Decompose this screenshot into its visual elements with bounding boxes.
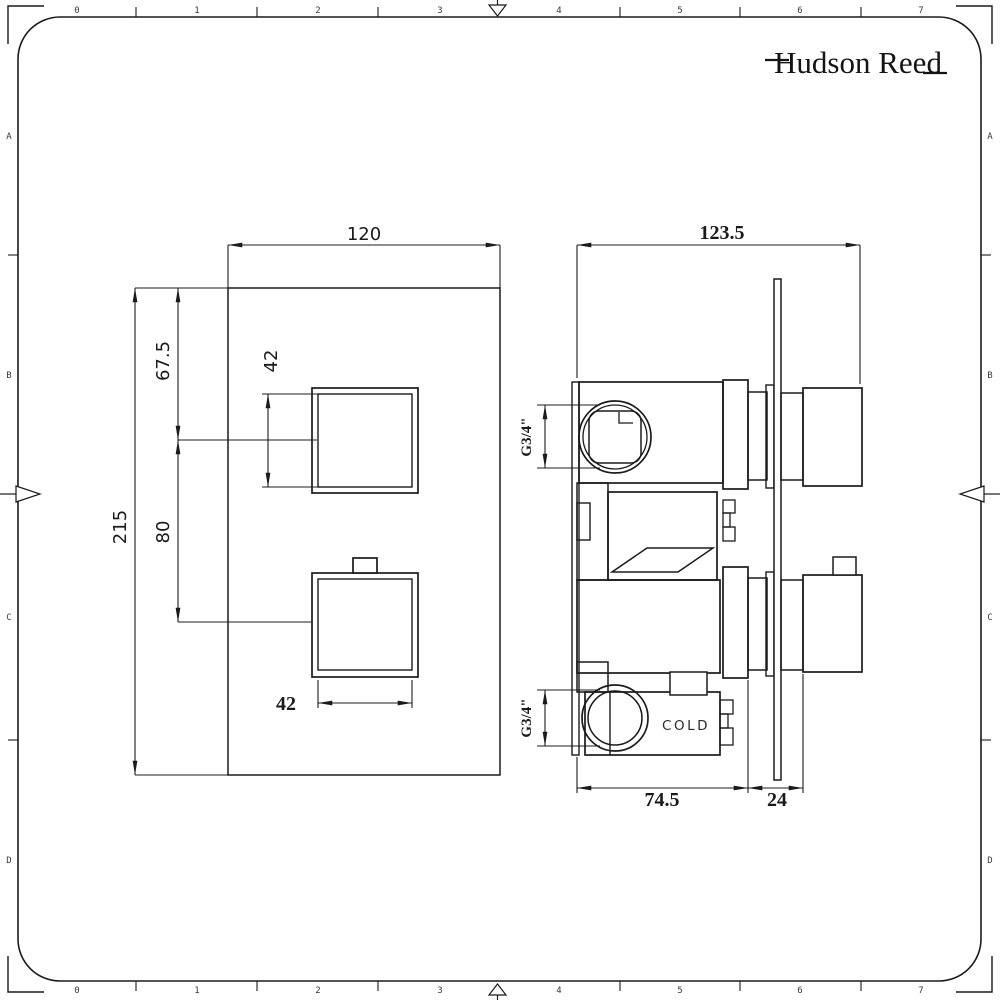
dim-42-top-label: 42 [261,350,282,373]
side-top-inlet-port-ring [583,405,647,469]
side-view [572,279,862,780]
front-view-dimension-labels: 120 215 67.5 80 42 42 [110,224,381,715]
ruler-bottom-5: 5 [677,986,682,996]
dim-g34-top-label: G3/4" [519,417,535,456]
ruler-top-7: 7 [918,6,923,16]
ruler-letters-left: A B C D [6,132,12,866]
ruler-top-1: 1 [194,6,199,16]
side-mid-screw-top [723,500,735,513]
side-wall-sliver [572,382,579,755]
center-mark-top-triangle-icon [489,5,506,16]
ruler-bottom-6: 6 [797,986,802,996]
ruler-top-4: 4 [556,6,561,16]
ruler-top-3: 3 [437,6,442,16]
side-top-stem [748,392,767,480]
side-cold-screw-top [720,700,733,714]
side-bottom-handle-tab [833,557,856,575]
side-top-inlet-notch [619,412,633,423]
front-bottom-handle-outer [312,573,418,677]
front-view-dimensions [135,245,500,775]
side-cold-tab [670,672,707,695]
ruler-right-a: A [987,132,993,142]
side-top-handle [803,388,862,486]
brand-logo-text: Hudson Reed [774,45,942,80]
side-cold-screw-bottom [720,728,733,745]
cold-port-label: COLD [662,718,710,734]
ruler-bottom-1: 1 [194,986,199,996]
ruler-bottom-2: 2 [315,986,320,996]
ruler-bottom-0: 0 [74,986,79,996]
side-top-inlet-port-outer [579,401,651,473]
center-mark-bottom-triangle-icon [489,984,506,995]
drawing-sheet: 0 1 2 3 4 5 6 7 0 1 2 3 4 5 6 7 A B C D … [0,0,1000,1000]
ruler-right-b: B [987,371,992,381]
brand-logo: Hudson Reed [765,45,947,80]
ruler-left-b: B [6,371,11,381]
side-top-stem-outer [781,393,803,480]
side-top-inlet-bore [589,411,641,463]
ruler-letters-right: A B C D [987,132,993,866]
front-top-handle-outer [312,388,418,493]
side-mid-lever-plate [612,548,713,572]
dim-67-5-label: 67.5 [153,341,174,381]
side-cold-inlet-inner [588,691,642,745]
center-mark-left-triangle-icon [16,486,40,502]
ruler-bottom-3: 3 [437,986,442,996]
side-cold-inlet-outer [582,685,648,751]
side-mid-body-block [608,492,717,580]
corner-bracket-top-left [8,6,44,44]
dim-74-5-label: 74.5 [645,789,680,811]
dim-42-bottom-label: 42 [276,693,296,715]
ruler-bottom-4: 4 [556,986,561,996]
front-bottom-handle-tab [353,558,377,573]
dim-24-label: 24 [767,789,787,811]
ruler-left-d: D [6,856,11,866]
side-bottom-handle [803,575,862,672]
ruler-top-6: 6 [797,6,802,16]
front-top-handle-inner [318,394,412,487]
ruler-bottom-7: 7 [918,986,923,996]
corner-bracket-top-right [956,6,992,44]
side-bottom-stem-outer [781,580,803,670]
side-wall-plate-edge [774,279,781,780]
ruler-left-a: A [6,132,12,142]
dim-80-label: 80 [153,521,174,544]
dim-120-label: 120 [347,224,381,245]
ruler-right-c: C [987,613,992,623]
center-mark-right-triangle-icon [960,486,984,502]
side-top-flange [723,380,748,489]
side-lower-body-block [577,580,720,673]
dim-215-label: 215 [110,510,131,544]
dim-g34-bottom-label: G3/4" [519,698,535,737]
ruler-top-2: 2 [315,6,320,16]
corner-bracket-bottom-left [8,956,44,992]
technical-drawing-canvas: 0 1 2 3 4 5 6 7 0 1 2 3 4 5 6 7 A B C D … [0,0,1000,1000]
front-bottom-handle-inner [318,579,412,670]
ruler-left-c: C [6,613,11,623]
ruler-right-d: D [987,856,992,866]
side-cold-screw-middle [720,714,728,728]
ruler-top-5: 5 [677,6,682,16]
dim-123-5-label: 123.5 [700,222,745,244]
side-mid-screw-bottom [723,527,735,541]
side-bottom-flange [723,567,748,678]
side-bottom-stem [748,578,767,670]
side-mid-left-block [577,483,608,580]
ruler-top-0: 0 [74,6,79,16]
side-mid-screw-middle [723,513,730,527]
side-view-dimension-labels: 123.5 G3/4" G3/4" 74.5 24 COLD [519,222,787,811]
